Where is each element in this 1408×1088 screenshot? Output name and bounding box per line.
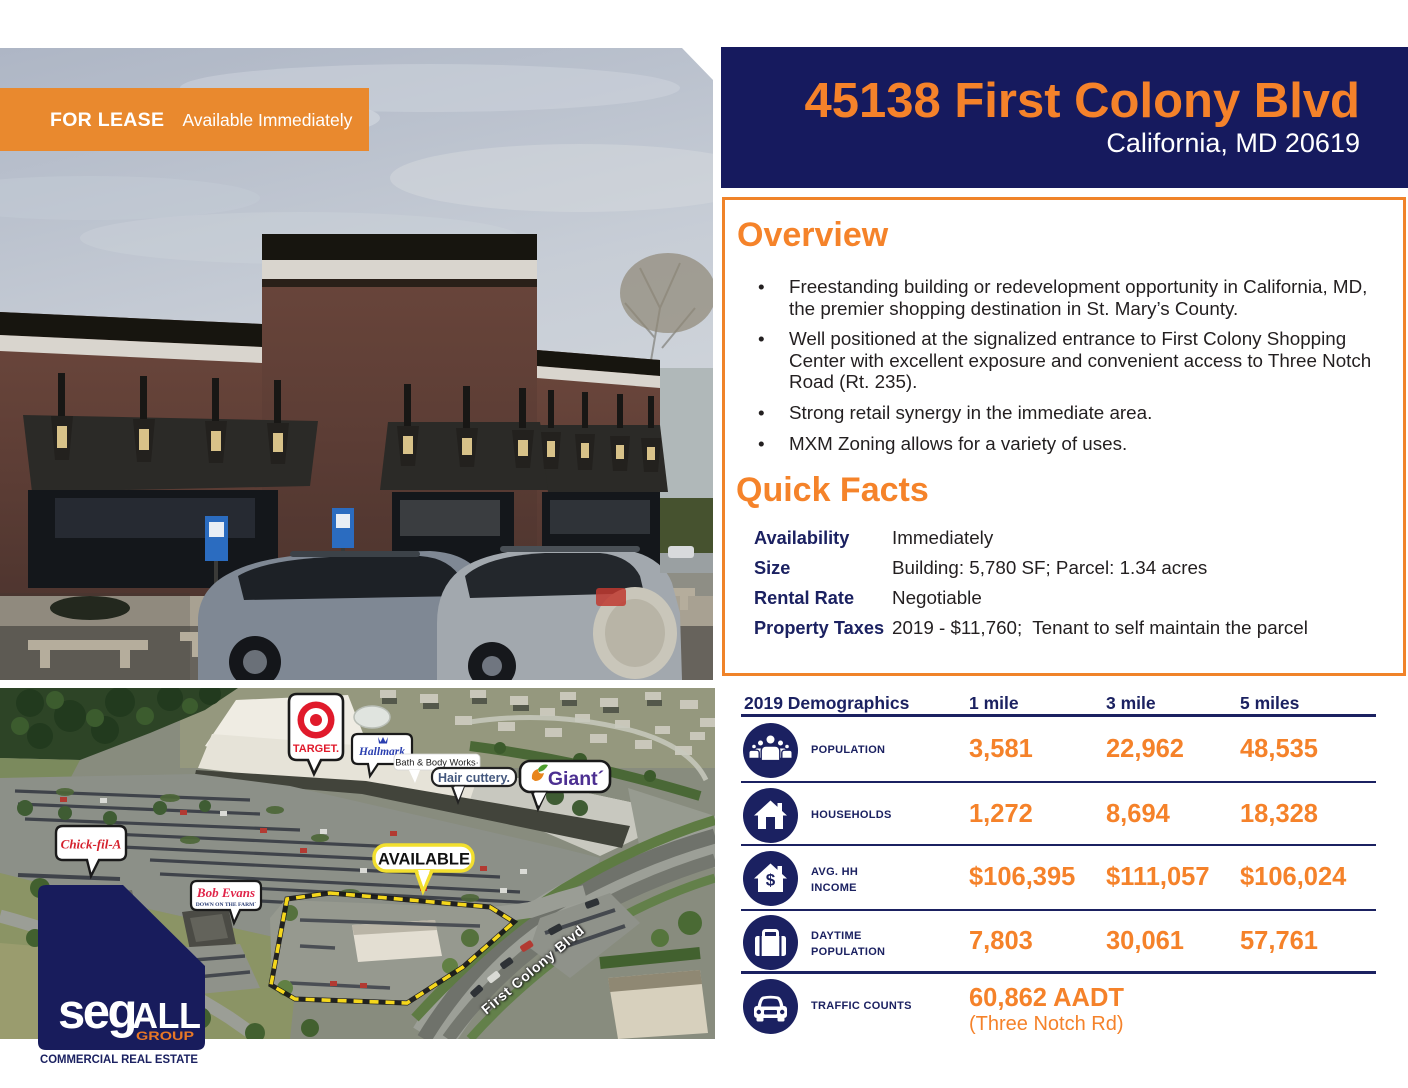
svg-text:GROUP: GROUP bbox=[136, 1029, 194, 1043]
svg-text:Giant´: Giant´ bbox=[548, 768, 604, 790]
svg-text:Hair cuttery.: Hair cuttery. bbox=[438, 771, 510, 785]
svg-text:$: $ bbox=[766, 871, 776, 890]
svg-text:Chick-fil-A: Chick-fil-A bbox=[61, 837, 122, 852]
svg-text:AVAILABLE: AVAILABLE bbox=[378, 851, 470, 869]
svg-text:TARGET.: TARGET. bbox=[293, 743, 339, 755]
svg-text:COMMERCIAL REAL ESTATE: COMMERCIAL REAL ESTATE bbox=[40, 1052, 198, 1066]
svg-text:seg: seg bbox=[58, 985, 135, 1039]
